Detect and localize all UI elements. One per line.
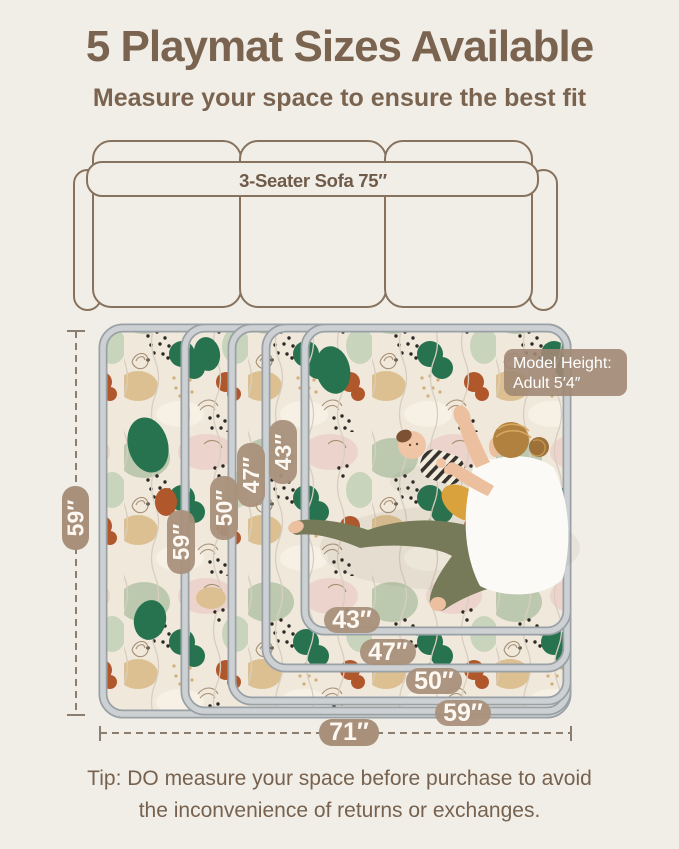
mat-bottom-badge-47: 47″ <box>360 638 416 666</box>
svg-text:Adult 5′4″: Adult 5′4″ <box>513 375 581 392</box>
page-title: 5 Playmat Sizes Available <box>0 22 679 72</box>
mat-side-badge-43: 43″ <box>269 420 297 484</box>
mat-bottom-badge-59: 59″ <box>435 699 491 727</box>
sofa-label: 3-Seater Sofa 75″ <box>239 170 387 191</box>
mat-side-badge-47: 47″ <box>237 443 265 507</box>
svg-text:59″: 59″ <box>443 699 483 727</box>
mother-foot <box>430 597 446 611</box>
svg-text:50″: 50″ <box>211 490 237 527</box>
svg-text:47″: 47″ <box>368 638 408 666</box>
sofa-outline <box>74 141 557 310</box>
svg-text:50″: 50″ <box>414 667 454 695</box>
svg-text:59″: 59″ <box>168 524 194 561</box>
tip-text: Tip: DO measure your space before purcha… <box>0 763 679 827</box>
mat-side-badge-50: 50″ <box>210 476 238 540</box>
size-diagram: 3-Seater Sofa 75″ <box>0 140 679 760</box>
outer-width-badge: 71″ <box>319 718 379 746</box>
svg-text:43″: 43″ <box>332 606 372 634</box>
svg-text:43″: 43″ <box>270 434 296 471</box>
mat-side-badge-59: 59″ <box>167 510 195 574</box>
tip-line-1: Tip: DO measure your space before purcha… <box>0 763 679 795</box>
baby-hand <box>436 458 446 468</box>
tip-line-2: the inconvenience of returns or exchange… <box>0 795 679 827</box>
outer-height-badge: 59″ <box>62 486 89 550</box>
mat-bottom-badge-43: 43″ <box>324 606 380 634</box>
svg-text:59″: 59″ <box>63 500 89 537</box>
mat-bottom-badge-50: 50″ <box>406 667 462 695</box>
infographic-page: 5 Playmat Sizes Available Measure your s… <box>0 0 679 849</box>
page-subtitle: Measure your space to ensure the best fi… <box>0 84 679 113</box>
svg-text:Model Height:: Model Height: <box>513 355 612 372</box>
svg-text:71″: 71″ <box>329 718 369 746</box>
svg-text:47″: 47″ <box>238 457 264 494</box>
model-height-badge: Model Height: Adult 5′4″ <box>504 349 627 396</box>
